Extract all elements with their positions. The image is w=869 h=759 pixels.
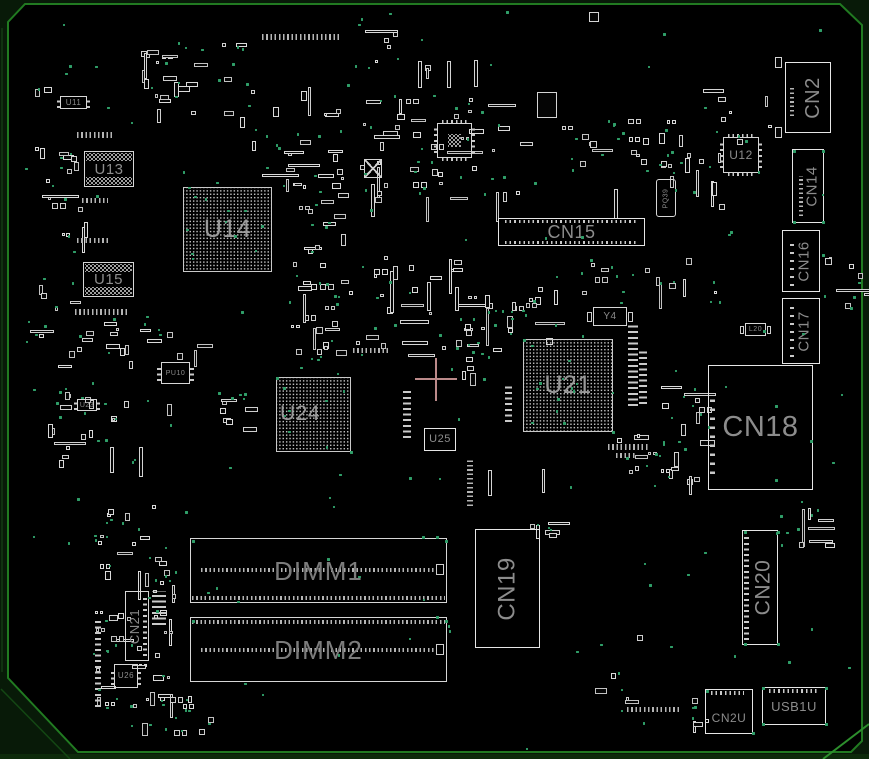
component-label: U26 [115,665,137,687]
component-label: U15 [84,263,133,296]
component-u13[interactable]: U13 [84,151,134,187]
component-label: U13 [85,152,133,186]
component-label: U14 [184,188,271,271]
end-pad [587,312,592,322]
connector-cn15[interactable]: CN15 [498,218,645,246]
component-u23[interactable]: U23 [77,399,97,411]
connector-cn17[interactable]: CN17 [782,298,820,364]
connector-dimm1[interactable]: DIMM1 [190,538,447,603]
pin-ticks [74,401,77,410]
component-label: Y4 [594,308,626,325]
connector-label: DIMM2 [191,618,446,681]
component-u12[interactable]: U12 [723,137,759,173]
component-qfn[interactable] [437,123,472,158]
component-u15[interactable]: U15 [83,262,134,297]
pin-ticks [434,128,437,153]
component-u21[interactable]: U21 [523,339,613,432]
connector-label: DIMM1 [191,539,446,602]
connector-label: CN15 [499,219,644,245]
pin-ticks [190,366,194,381]
component-l20[interactable]: L20 [745,323,766,336]
component-y4[interactable]: Y4 [593,307,627,326]
pin-ticks [111,668,114,685]
connector-cn2[interactable]: CN2 [785,62,831,133]
component-label: PU10 [162,363,189,383]
component-u14[interactable]: U14 [183,187,272,272]
connector-label: CN20 [743,531,777,644]
pin-ticks [138,668,141,685]
end-pad [740,326,744,334]
component-u11[interactable]: U11 [60,96,87,109]
component-u25[interactable]: U25 [424,428,456,451]
center-pad [448,134,461,147]
connector-label: CN17 [783,299,819,363]
end-pad [767,326,771,334]
components-layer: U11 U13 U14 U15 U23 PU10 U24 [0,0,869,759]
component-crystal[interactable] [364,159,382,178]
connector-label: CN14 [793,150,823,222]
pin-ticks [442,158,467,161]
connector-cn2u[interactable]: CN2U [705,689,753,734]
connector-label: CN16 [783,231,819,291]
component-u24[interactable]: U24 [276,377,351,452]
connector-label: CN2U [706,690,752,733]
pin-ticks [442,120,467,123]
component-label: U25 [425,429,455,450]
connector-label: CN2 [786,63,830,132]
component-label: U23 [78,400,96,410]
connector-cn18[interactable]: CN18 [708,365,813,490]
component-pu10[interactable]: PU10 [161,362,190,384]
boardview-canvas[interactable]: U11 U13 U14 U15 U23 PU10 U24 [0,0,869,759]
connector-cn20[interactable]: CN20 [742,530,778,645]
connector-cn19[interactable]: CN19 [475,529,540,648]
pin-ticks [57,98,60,108]
connector-cn14[interactable]: CN14 [792,149,824,223]
component-label: PQ39 [657,180,675,216]
component-label: L20 [746,324,765,335]
connector-label: USB1U [763,688,825,724]
connector-dimm2[interactable]: DIMM2 [190,617,447,682]
pin-ticks [97,401,100,410]
connector-cn16[interactable]: CN16 [782,230,820,292]
connector-label: CN21 [126,592,148,660]
component-u26[interactable]: U26 [114,664,138,688]
pin-ticks [728,173,754,176]
pin-ticks [472,128,475,153]
connector-cn21[interactable]: CN21 [125,591,149,661]
pin-ticks [720,142,723,168]
pin-ticks [759,142,762,168]
pin-ticks [728,134,754,137]
end-pad [628,312,633,322]
component-label: U12 [724,138,758,172]
pin-ticks [157,366,161,381]
connector-label: CN19 [476,530,539,647]
connector-label: CN18 [709,366,812,489]
component-label: U21 [524,340,612,431]
component-pq39[interactable]: PQ39 [656,179,676,217]
component-label: U24 [280,403,320,424]
component-label: U11 [61,97,86,108]
pin-ticks [87,98,90,108]
connector-usb1u[interactable]: USB1U [762,687,826,725]
